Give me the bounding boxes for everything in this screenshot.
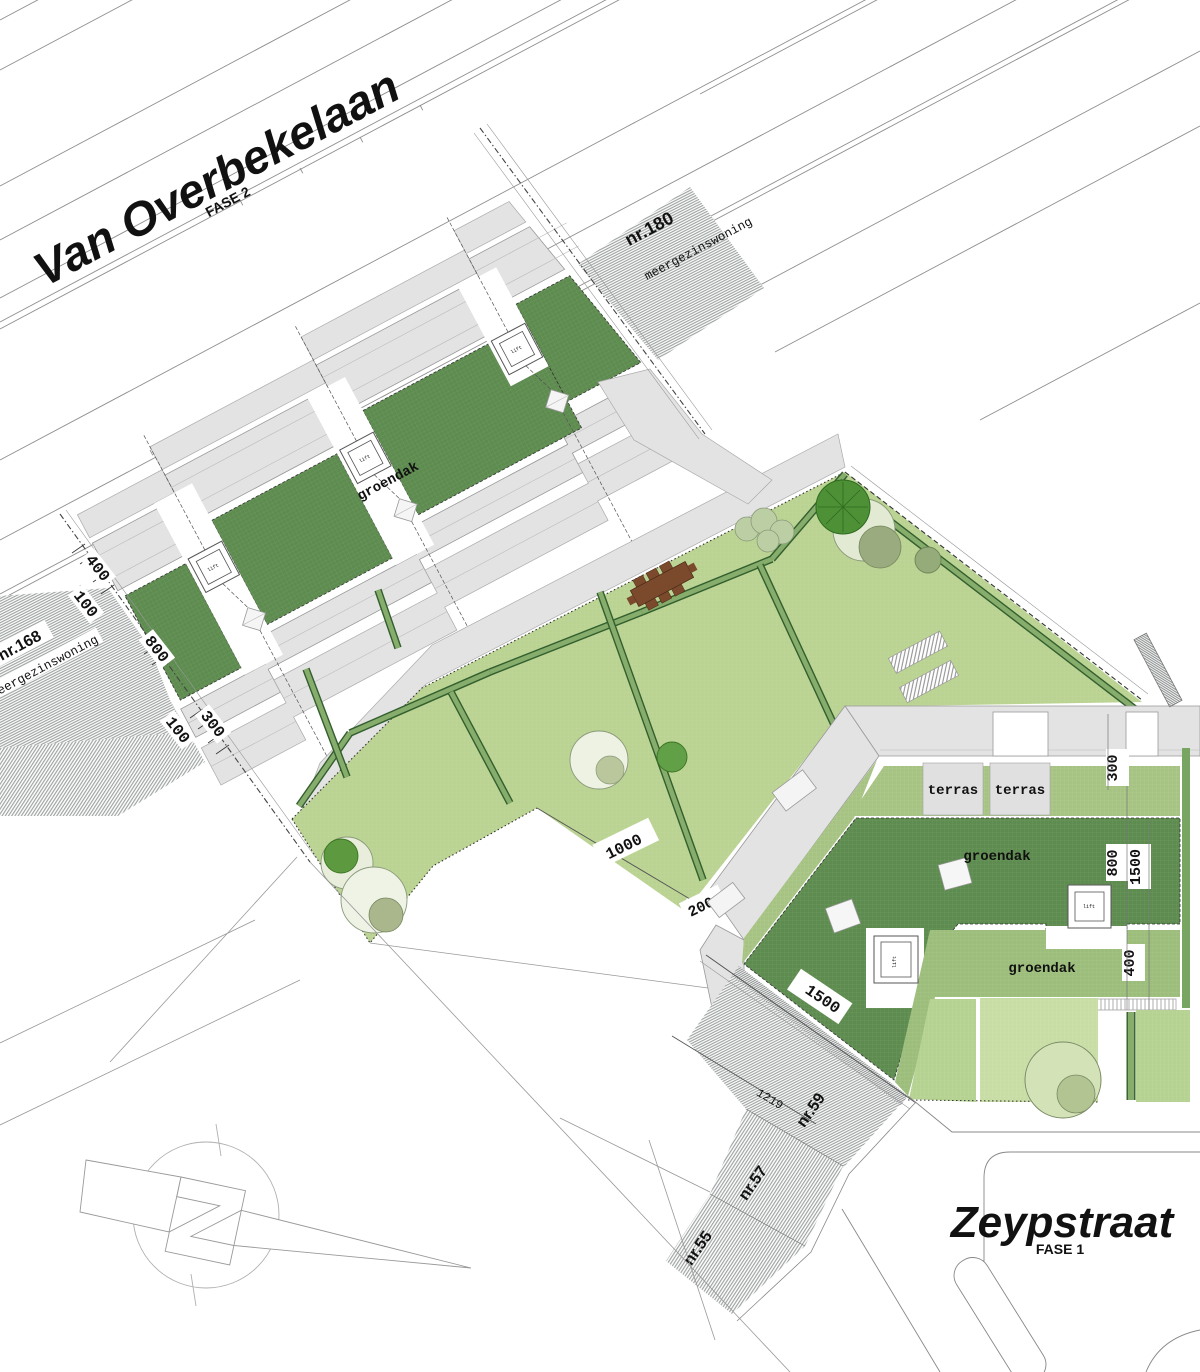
svg-text:terras: terras [995, 783, 1045, 799]
svg-text:terras: terras [928, 783, 978, 799]
svg-text:300: 300 [1105, 754, 1122, 781]
svg-text:FASE 1: FASE 1 [1036, 1241, 1084, 1257]
svg-text:800: 800 [1105, 849, 1122, 876]
svg-text:lift: lift [1083, 904, 1095, 910]
svg-text:Zeypstraat: Zeypstraat [949, 1198, 1176, 1247]
svg-text:groendak: groendak [1008, 961, 1075, 977]
svg-text:groendak: groendak [963, 849, 1030, 865]
svg-text:lift: lift [892, 956, 898, 968]
svg-text:400: 400 [1122, 949, 1139, 976]
svg-text:1500: 1500 [1128, 849, 1145, 885]
